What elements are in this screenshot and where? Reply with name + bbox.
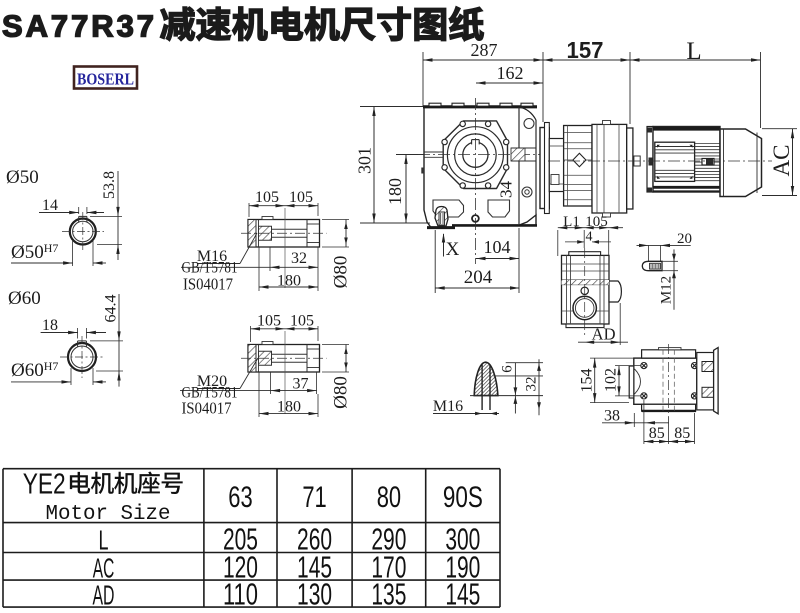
svg-text:18: 18 <box>42 317 58 334</box>
svg-text:85: 85 <box>649 425 665 442</box>
svg-text:20: 20 <box>677 231 692 247</box>
svg-text:180: 180 <box>277 273 301 290</box>
svg-text:L: L <box>686 38 701 65</box>
svg-text:M12: M12 <box>659 276 675 304</box>
svg-text:287: 287 <box>471 40 498 60</box>
svg-text:AC: AC <box>769 145 794 177</box>
svg-text:Motor Size: Motor Size <box>46 503 171 526</box>
svg-text:301: 301 <box>355 147 375 174</box>
svg-text:110: 110 <box>223 578 258 612</box>
svg-text:AD: AD <box>93 580 115 611</box>
svg-text:64.4: 64.4 <box>103 295 120 323</box>
svg-text:90S: 90S <box>443 481 483 514</box>
svg-text:53.8: 53.8 <box>101 171 118 199</box>
svg-text:105: 105 <box>289 189 313 206</box>
svg-text:YE2: YE2 <box>23 469 66 501</box>
svg-text:6: 6 <box>500 365 516 373</box>
svg-text:AD: AD <box>592 325 616 344</box>
svg-text:IS04017: IS04017 <box>182 398 232 417</box>
svg-text:162: 162 <box>497 63 524 83</box>
svg-text:L: L <box>99 525 109 556</box>
svg-text:180: 180 <box>277 399 301 416</box>
svg-text:135: 135 <box>371 578 406 612</box>
svg-text:X: X <box>446 239 460 260</box>
svg-text:105: 105 <box>257 313 281 330</box>
svg-text:105: 105 <box>255 189 279 206</box>
svg-text:180: 180 <box>385 178 405 205</box>
svg-text:105: 105 <box>290 313 314 330</box>
svg-text:104: 104 <box>484 237 511 257</box>
svg-text:102: 102 <box>603 368 620 392</box>
svg-text:157: 157 <box>567 37 604 63</box>
svg-text:154: 154 <box>579 369 596 393</box>
svg-text:L1: L1 <box>563 214 580 230</box>
svg-text:32: 32 <box>291 250 307 267</box>
svg-text:80: 80 <box>377 481 401 514</box>
svg-text:Ø50: Ø50 <box>6 167 39 188</box>
svg-text:4: 4 <box>586 230 593 245</box>
svg-text:38: 38 <box>604 408 620 425</box>
svg-text:M16: M16 <box>433 398 463 415</box>
svg-text:34: 34 <box>497 181 516 199</box>
svg-text:Ø60: Ø60 <box>8 288 41 309</box>
svg-text:145: 145 <box>445 578 480 612</box>
svg-text:63: 63 <box>228 481 252 514</box>
svg-text:SA77R37: SA77R37 <box>2 8 157 43</box>
svg-text:85: 85 <box>674 425 690 442</box>
svg-text:71: 71 <box>302 481 326 514</box>
svg-text:204: 204 <box>464 267 493 288</box>
svg-text:BOSERL: BOSERL <box>77 70 134 89</box>
svg-text:Ø80: Ø80 <box>331 376 352 409</box>
svg-text:32: 32 <box>524 377 540 392</box>
svg-text:Ø80: Ø80 <box>331 256 352 289</box>
svg-text:IS04017: IS04017 <box>183 275 233 294</box>
svg-text:14: 14 <box>42 197 58 214</box>
svg-text:105: 105 <box>585 214 608 230</box>
svg-text:130: 130 <box>297 578 332 612</box>
svg-text:37: 37 <box>293 376 309 393</box>
